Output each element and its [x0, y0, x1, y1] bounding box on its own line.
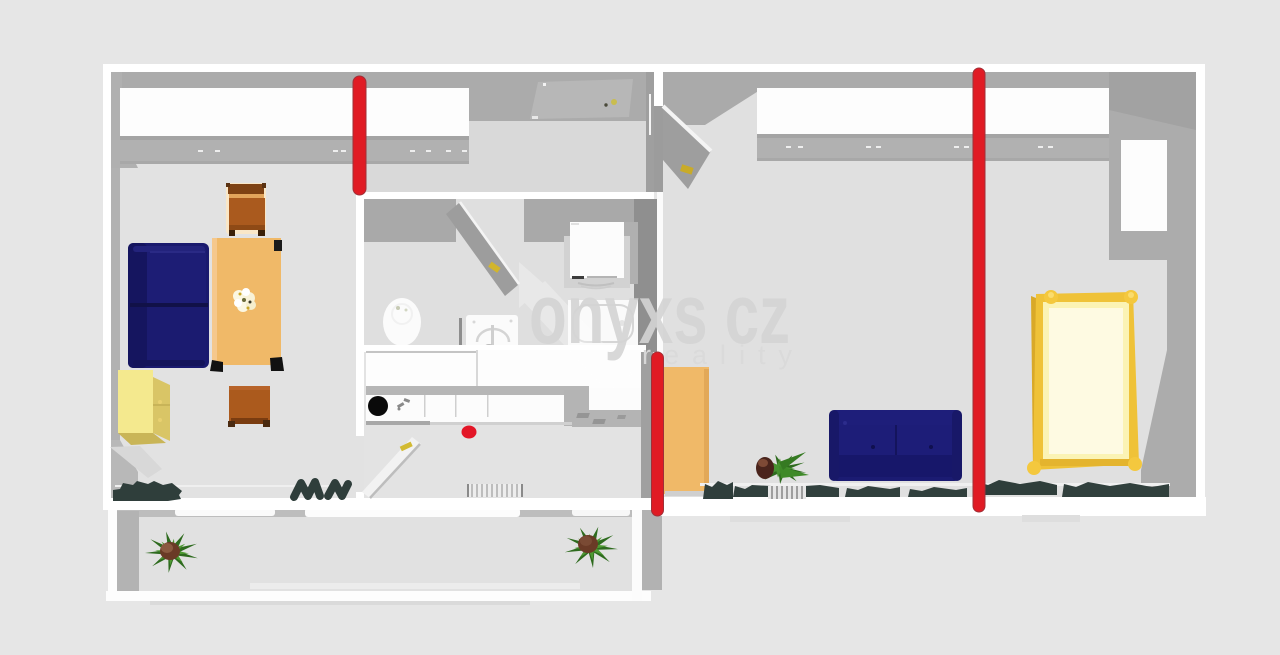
- svg-text:onyxs cz: onyxs cz: [529, 267, 790, 361]
